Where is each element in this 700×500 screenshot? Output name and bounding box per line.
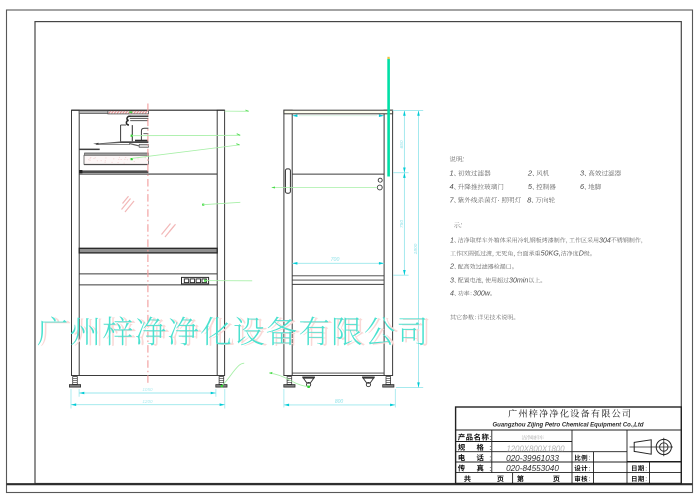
svg-text:1: 1	[450, 169, 454, 178]
svg-text:020-84553040: 020-84553040	[506, 464, 559, 473]
svg-text:1200X800X1800: 1200X800X1800	[506, 444, 565, 453]
svg-text::: :	[489, 453, 491, 462]
svg-text:1: 1	[450, 236, 454, 244]
svg-text::: :	[645, 476, 647, 483]
svg-text::: :	[489, 433, 491, 442]
svg-text:304: 304	[599, 236, 611, 244]
svg-text:2: 2	[527, 169, 532, 178]
svg-text::: :	[489, 443, 491, 452]
svg-text:020-39961033: 020-39961033	[506, 454, 559, 463]
svg-text::: :	[589, 476, 591, 483]
svg-text::: :	[645, 466, 647, 473]
svg-text::: :	[489, 464, 491, 473]
svg-text:1050: 1050	[142, 387, 153, 392]
svg-text:1200: 1200	[142, 399, 153, 404]
svg-text:700: 700	[331, 257, 340, 263]
svg-text:300w: 300w	[473, 289, 491, 297]
svg-text:50KG,: 50KG,	[541, 250, 561, 258]
svg-text:4: 4	[450, 289, 454, 297]
svg-text:4: 4	[450, 182, 454, 191]
svg-text:650: 650	[399, 140, 405, 148]
svg-text::: :	[589, 466, 591, 473]
svg-text::: :	[460, 223, 462, 230]
svg-text:D: D	[579, 250, 584, 258]
svg-text:·: ·	[497, 195, 499, 204]
svg-text::: :	[462, 157, 464, 164]
svg-text:Guangzhou Zijing Petro Chemica: Guangzhou Zijing Petro Chemical Equipmen…	[493, 423, 644, 429]
svg-text:750: 750	[399, 220, 405, 228]
svg-text:800: 800	[335, 399, 344, 405]
svg-text:3: 3	[450, 276, 454, 284]
svg-text:1800: 1800	[413, 243, 419, 254]
svg-text:2: 2	[449, 263, 454, 271]
svg-text:30min: 30min	[509, 276, 528, 284]
svg-text::: :	[589, 455, 591, 462]
